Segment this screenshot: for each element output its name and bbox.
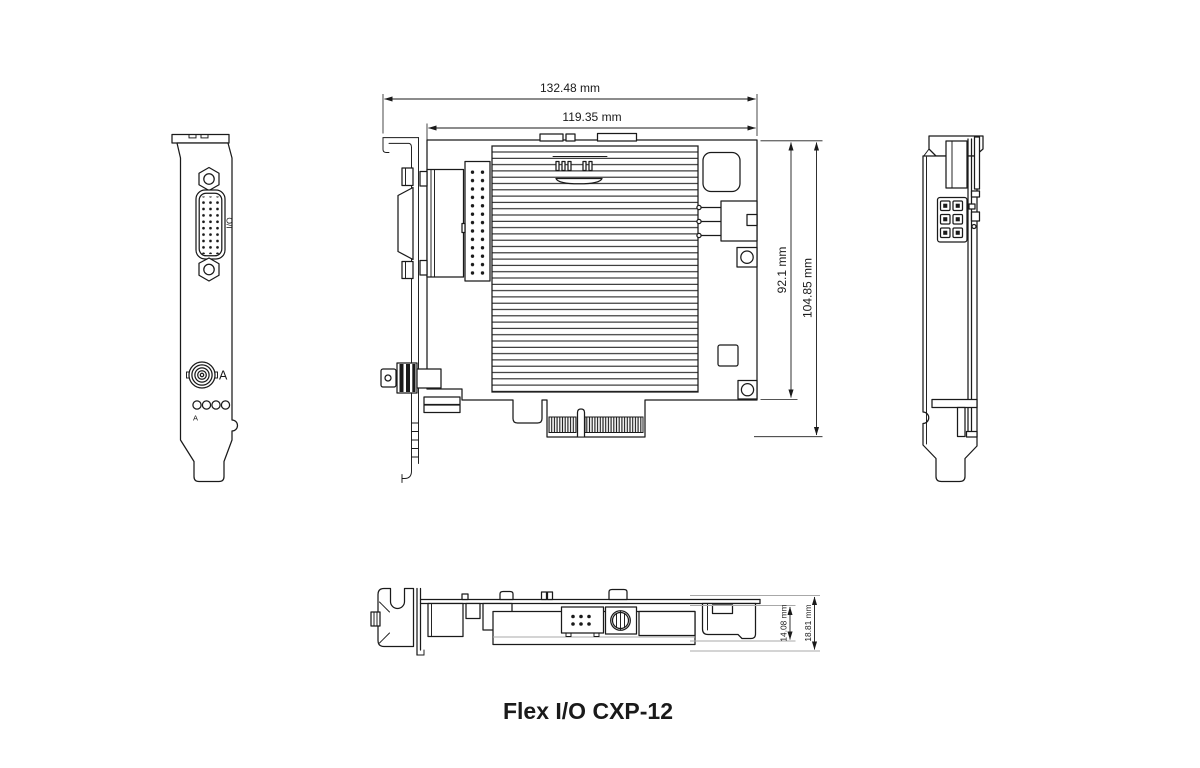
capacitor-component [703, 153, 740, 192]
profile-screw [606, 607, 637, 634]
side-view [923, 136, 983, 482]
heatsink [492, 146, 698, 392]
led-group-label: A [193, 414, 198, 423]
profile-components [428, 604, 756, 645]
fan-connector [697, 201, 757, 241]
dim-profile-overall-height-label: 18.81 mm [803, 604, 813, 641]
bracket-top-tab [172, 135, 229, 144]
technical-drawing: I/O A A [0, 0, 1200, 768]
bottom-profile-view: 14.08 mm 18.81 mm [371, 589, 820, 656]
io-connector-label: I/O [225, 217, 235, 229]
profile-6pin-connector [562, 607, 604, 637]
side-top-post [975, 137, 980, 189]
gold-fingers-short [549, 417, 576, 433]
top-view: 132.48 mm 119.35 mm 92.1 mm 104.85 mm [381, 81, 823, 483]
pin-header [462, 162, 490, 282]
profile-power-connector [703, 604, 756, 639]
gold-fingers-long [585, 417, 643, 433]
pcie-key-notch [578, 409, 585, 437]
pin-header-pins [468, 167, 488, 276]
bottom-left-component [424, 397, 460, 413]
drawing-title: Flex I/O CXP-12 [503, 698, 673, 724]
dim-component-height-label: 14.08 mm [779, 604, 789, 641]
jack-screw-nut-top [199, 168, 219, 191]
dim-overall-height-label: 104.85 mm [801, 258, 815, 318]
dim-overall-width-label: 132.48 mm [540, 81, 600, 95]
dim-pcb-width: 119.35 mm [427, 110, 756, 140]
drawing-canvas: I/O A A [0, 0, 1200, 768]
side-heatsink-edge [946, 141, 967, 188]
dim-pcb-width-label: 119.35 mm [562, 110, 621, 124]
dsub-body [427, 170, 464, 278]
power-connector-6pin [938, 198, 968, 243]
jack-post [402, 262, 413, 279]
jack-screw-nut-bottom [199, 258, 219, 281]
profile-top-tabs [462, 590, 627, 600]
jack-post [402, 168, 413, 186]
io-connector [196, 190, 225, 259]
dim-pcb-height-label: 92.1 mm [775, 247, 789, 294]
dsub-shell [398, 188, 413, 260]
bracket-profile-ticks [412, 423, 419, 457]
mounting-hole-top [737, 248, 757, 268]
coax-connector-label: A [219, 369, 228, 383]
front-bracket-view: I/O A A [172, 135, 238, 482]
io-connector-pins [202, 197, 223, 255]
square-component [718, 345, 738, 366]
mounting-hole-bottom [738, 381, 757, 400]
dsub-connector [398, 168, 464, 279]
profile-bracket-end [371, 589, 424, 656]
